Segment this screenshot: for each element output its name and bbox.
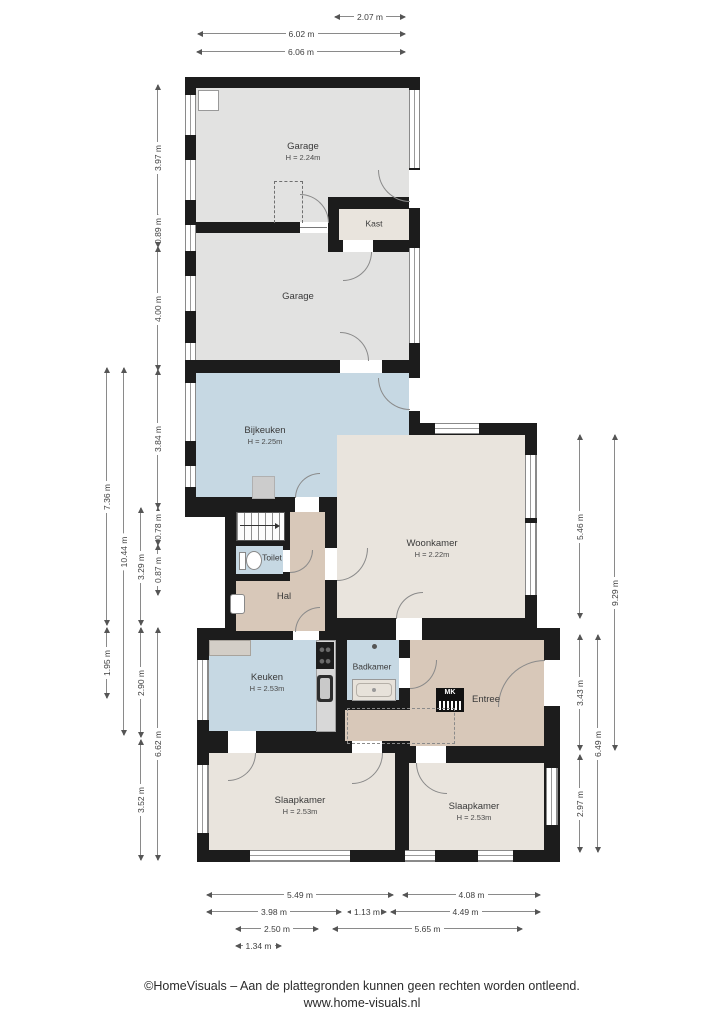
room-name: Badkamer: [353, 661, 392, 672]
shower-head-icon: [372, 644, 377, 649]
room-label-slaapkamer-left: Slaapkamer H = 2.53m: [275, 795, 326, 817]
dimension-left: 3.97 m: [157, 85, 158, 230]
dashed-outline: [274, 181, 303, 223]
room-height: H = 2.53m: [250, 684, 285, 694]
stove-icon: [316, 642, 334, 669]
window: [197, 660, 209, 720]
room-label-woonkamer: Woonkamer H = 2.22m: [406, 538, 457, 560]
window: [546, 768, 558, 825]
stair-direction-arrow: [240, 525, 278, 526]
window: [185, 95, 196, 135]
room-label-bijkeuken: Bijkeuken H = 2.25m: [244, 425, 285, 447]
door-leaf: [300, 227, 327, 228]
appliance-box: [252, 476, 275, 499]
room-label-keuken: Keuken H = 2.53m: [250, 672, 285, 694]
dimension-top: 6.02 m: [198, 33, 405, 34]
door-opening: [340, 360, 382, 373]
room-name: Keuken: [250, 672, 285, 684]
dimension-bottom: 2.50 m: [236, 928, 318, 929]
dimension-left: 0.78 m: [157, 508, 158, 545]
door-opening: [409, 378, 420, 411]
floor-plan-page: MK Garage H = 2.24m Kast Garage Bijkeuke…: [0, 0, 724, 1024]
room-height: H = 2.53m: [275, 807, 326, 817]
dimension-left: 0.87 m: [157, 545, 158, 595]
window: [435, 423, 479, 434]
dimension-top: 6.06 m: [197, 51, 405, 52]
room-name: Kast: [365, 218, 382, 229]
window: [185, 160, 196, 200]
room-height: H = 2.24m: [286, 153, 321, 163]
dimension-left: 7.36 m: [106, 368, 107, 625]
dimension-bottom: 1.34 m: [236, 945, 281, 946]
room-label-toilet: Toilet: [262, 552, 282, 563]
kitchen-sink-icon: [317, 675, 333, 702]
room-label-entree: Entree: [472, 694, 500, 706]
counter-top: [209, 640, 251, 656]
window: [525, 455, 537, 518]
footer-disclaimer: ©HomeVisuals – Aan de plattegronden kunn…: [0, 978, 724, 995]
meterkast-label: MK: [436, 688, 464, 698]
door-opening: [283, 550, 290, 572]
window: [185, 466, 196, 487]
room-name: Slaapkamer: [275, 795, 326, 807]
dashed-outline-entree: [347, 708, 455, 744]
room-height: H = 2.22m: [406, 550, 457, 560]
dimension-bottom: 4.08 m: [403, 894, 540, 895]
dimension-left: 4.00 m: [157, 247, 158, 370]
chimney-box: [198, 90, 219, 111]
dimension-left: 2.90 m: [140, 628, 141, 737]
dimension-left: 1.95 m: [106, 628, 107, 698]
window: [409, 248, 420, 343]
room-name: Slaapkamer: [449, 801, 500, 813]
room-name: Woonkamer: [406, 538, 457, 550]
room-name: Garage: [282, 291, 314, 303]
room-height: H = 2.25m: [244, 437, 285, 447]
window: [185, 383, 196, 441]
door-opening: [409, 170, 420, 208]
window: [250, 850, 350, 862]
dimension-left: 3.29 m: [140, 508, 141, 625]
room-label-hal: Hal: [277, 591, 291, 603]
room-label-badkamer: Badkamer: [353, 661, 392, 672]
door-opening: [399, 658, 410, 688]
toilet-icon: [239, 549, 263, 571]
door-opening: [325, 548, 337, 580]
dimension-left: 3.84 m: [157, 370, 158, 508]
door-opening: [295, 497, 319, 512]
dimension-bottom: 1.13 m: [348, 911, 386, 912]
dimension-bottom: 4.49 m: [391, 911, 540, 912]
room-label-kast: Kast: [365, 218, 382, 229]
room-name: Garage: [286, 141, 321, 153]
dimension-right: 5.46 m: [579, 435, 580, 618]
door-opening: [293, 631, 319, 640]
dimension-top: 2.07 m: [335, 16, 405, 17]
dimension-left: 0.89 m: [157, 215, 158, 247]
dimension-right: 6.49 m: [597, 635, 598, 852]
door-opening: [228, 731, 256, 753]
window: [525, 523, 537, 595]
dimension-right: 3.43 m: [579, 635, 580, 750]
window: [409, 90, 420, 168]
footer: ©HomeVisuals – Aan de plattegronden kunn…: [0, 978, 724, 1012]
door-opening: [396, 618, 422, 640]
dimension-bottom: 5.49 m: [207, 894, 393, 895]
room-height: H = 2.53m: [449, 813, 500, 823]
dimension-right: 9.29 m: [614, 435, 615, 750]
window: [185, 225, 196, 251]
door-opening: [416, 746, 446, 763]
room-label-garage-bottom: Garage: [282, 291, 314, 303]
window: [405, 850, 435, 862]
window: [197, 765, 209, 833]
dimension-left: 3.52 m: [140, 740, 141, 860]
room-woonkamer: [337, 435, 525, 618]
dimension-left: 6.62 m: [157, 628, 158, 860]
room-name: Hal: [277, 591, 291, 603]
room-name: Bijkeuken: [244, 425, 285, 437]
door-opening: [343, 240, 373, 252]
window: [185, 276, 196, 311]
dimension-bottom: 3.98 m: [207, 911, 341, 912]
room-label-garage-top: Garage H = 2.24m: [286, 141, 321, 163]
room-label-slaapkamer-right: Slaapkamer H = 2.53m: [449, 801, 500, 823]
window: [185, 343, 196, 360]
dimension-right: 2.97 m: [579, 755, 580, 852]
dimension-bottom: 5.65 m: [333, 928, 522, 929]
room-name: Entree: [472, 694, 500, 706]
dimension-left: 10.44 m: [123, 368, 124, 735]
room-name: Toilet: [262, 552, 282, 563]
front-door-opening: [544, 660, 560, 706]
footer-url: www.home-visuals.nl: [0, 995, 724, 1012]
window: [478, 850, 513, 862]
hand-basin-icon: [230, 594, 245, 614]
shower-tray-icon: [352, 679, 396, 701]
